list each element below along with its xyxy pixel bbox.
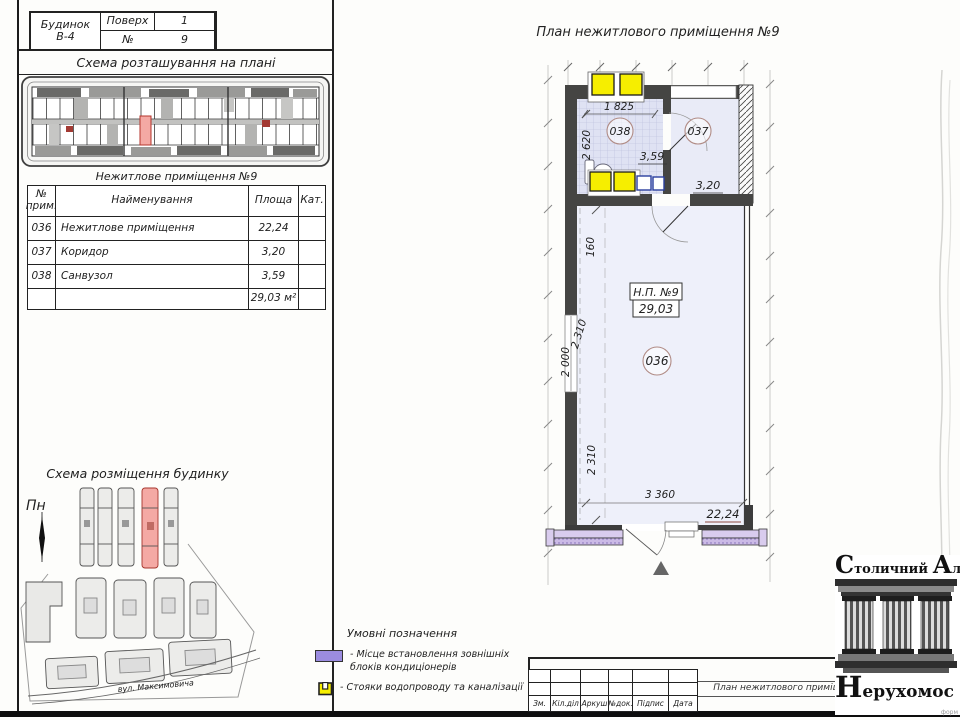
- riser-icon: [592, 74, 614, 95]
- col-cat: Кат.: [299, 186, 325, 217]
- col-name: Найменування: [56, 186, 249, 217]
- riser-swatch-icon: [318, 682, 333, 696]
- building-value: В-4: [56, 31, 75, 43]
- total-cat: [299, 289, 325, 309]
- legend-item-riser: - Стояки водопроводу та каналізації: [305, 682, 545, 696]
- dim-2310-b: 2 310: [586, 445, 598, 475]
- dim-bath-height: 2 620: [581, 130, 593, 160]
- riser-icon: [590, 172, 611, 191]
- logo-columns-icon: [835, 579, 959, 675]
- hatched-wall: [739, 85, 753, 203]
- row-038-area: 3,59: [249, 265, 299, 289]
- riser-icon: [620, 74, 642, 95]
- row-037-area: 3,20: [249, 241, 299, 265]
- unit-area: 29,03: [639, 302, 673, 316]
- highlighted-unit: [140, 116, 151, 145]
- total-empty-1: [28, 289, 56, 309]
- ac-platforms: [546, 529, 767, 546]
- legend-title: Умовні позначення: [347, 627, 545, 640]
- entrance-marker: [653, 561, 669, 575]
- row-038-name: Санвузол: [56, 265, 249, 289]
- dim-160: 160: [585, 237, 597, 257]
- num-value-cell: 9: [155, 31, 215, 49]
- col-num: № прим.: [28, 186, 56, 217]
- north-arrow: Пн: [26, 498, 46, 562]
- building-header-table: Будинок В-4 Поверх 1 № 9: [29, 11, 217, 51]
- legend-ac-line2: блоків кондиціонерів: [350, 662, 509, 675]
- logo-top-text: Столичний Аль: [835, 555, 960, 576]
- tb-col-kil: Кіл.діл: [551, 696, 581, 711]
- floor-value-cell: 1: [155, 13, 215, 31]
- room-038-number: 038: [610, 125, 631, 138]
- row-037-cat: [299, 241, 325, 265]
- room-037-number: 037: [688, 125, 709, 138]
- area-036: 22,24: [707, 507, 740, 521]
- scan-artifacts: [936, 70, 960, 600]
- unit-name: Н.П. №9: [633, 286, 678, 299]
- corridor-band: [32, 120, 319, 125]
- titleblock-table: Зм. Кіл.діл Аркуш №док. Підпис Дата: [528, 669, 698, 712]
- plan-title: План нежитлового приміщення №9: [536, 25, 779, 40]
- unit-label: Н.П. №9 29,03: [630, 283, 682, 317]
- riser-icon: [614, 172, 635, 191]
- location-scheme-title: Схема розташування на плані: [19, 49, 333, 75]
- red-mark-1: [66, 126, 73, 132]
- tb-col-zm: Зм.: [529, 696, 551, 711]
- row-036-area: 22,24: [249, 217, 299, 241]
- row-037-num: 037: [28, 241, 56, 265]
- buildings-top-row: [80, 488, 178, 568]
- row-036-cat: [299, 217, 325, 241]
- site-plan-drawing: Пн вул. Максимовича: [18, 482, 273, 710]
- threshold: [665, 522, 698, 531]
- row-038-num: 038: [28, 265, 56, 289]
- floor-plan-drawing: План нежитлового приміщення №9: [530, 10, 786, 610]
- row-036-name: Нежитлове приміщення: [56, 217, 249, 241]
- floor-label-cell: Поверх: [101, 13, 155, 31]
- company-logo: Столичний Аль Нерухомос форм: [835, 555, 960, 715]
- location-scheme-drawing: [19, 74, 333, 169]
- entrance-opening: [622, 524, 666, 531]
- tick-marks-top: [564, 63, 748, 71]
- dim-bath-width: 1 825: [604, 101, 634, 113]
- sink: [637, 176, 651, 190]
- buildings-bottom-row: [45, 639, 233, 689]
- premises-table-title: Нежитлове приміщення №9: [27, 170, 326, 185]
- tb-col-arkush: Аркуш: [581, 696, 609, 711]
- dim-2000: 2 000: [560, 347, 572, 377]
- num-label-cell: №: [101, 31, 155, 49]
- row-036-num: 036: [28, 217, 56, 241]
- row-037-name: Коридор: [56, 241, 249, 265]
- sink: [653, 177, 664, 190]
- tb-col-ndok: №док.: [609, 696, 633, 711]
- legend-riser-text: - Стояки водопроводу та каналізації: [340, 682, 523, 693]
- row-038-cat: [299, 265, 325, 289]
- area-037: 3,20: [696, 179, 721, 192]
- legend-item-ac: - Місце встановлення зовнішніх блоків ко…: [305, 649, 545, 675]
- building-cell: Будинок В-4: [31, 13, 101, 49]
- legend-ac-line1: - Місце встановлення зовнішніх: [350, 649, 509, 662]
- top-niche: [670, 86, 736, 98]
- dim-room-width: 3 360: [645, 489, 675, 501]
- red-mark-2: [262, 120, 270, 127]
- north-label: Пн: [26, 498, 46, 514]
- tb-col-pidpys: Підпис: [633, 696, 669, 711]
- area-038: 3,59: [640, 150, 665, 163]
- total-area: 29,03 м²: [249, 289, 299, 309]
- total-empty-2: [56, 289, 249, 309]
- room-036-number: 036: [646, 354, 669, 368]
- premises-table: № прим. Найменування Площа Кат. 036 Нежи…: [27, 185, 326, 310]
- tb-col-data: Дата: [669, 696, 697, 711]
- logo-note: форм: [941, 709, 958, 716]
- balconies-top: [37, 88, 317, 97]
- col-area: Площа: [249, 186, 299, 217]
- premises-table-section: Нежитлове приміщення №9 № прим. Найменув…: [27, 170, 326, 310]
- site-scheme-title: Схема розміщення будинку: [30, 466, 245, 481]
- logo-bottom-text: Нерухомос: [835, 677, 954, 701]
- ac-swatch-icon: [315, 650, 343, 662]
- sheet-frame-bottom: [0, 711, 960, 717]
- buildings-middle-row: [26, 578, 216, 642]
- legend: Умовні позначення - Місце встановлення з…: [305, 627, 545, 703]
